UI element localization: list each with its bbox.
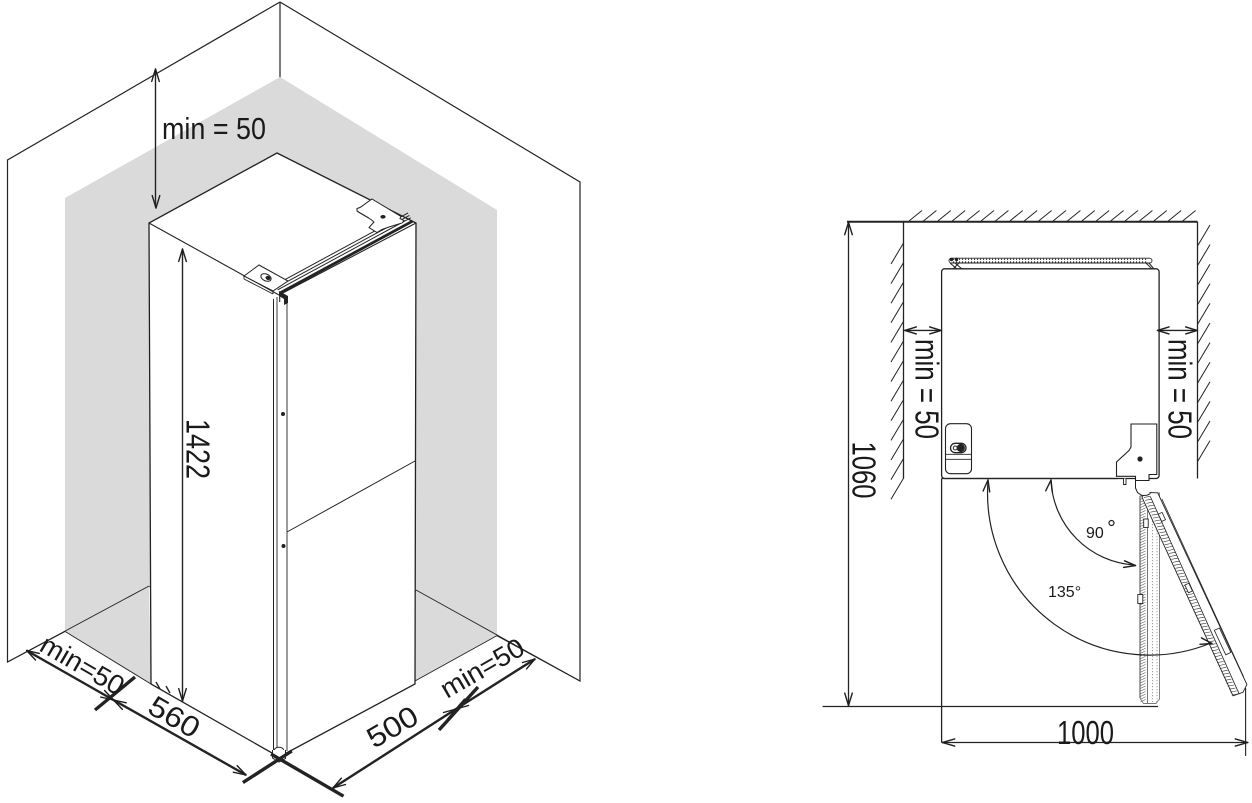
svg-text:90: 90 (1086, 525, 1104, 542)
svg-text:min = 50: min = 50 (162, 111, 266, 146)
svg-text:1000: 1000 (1057, 714, 1114, 751)
svg-text:500: 500 (362, 700, 425, 755)
svg-text:1422: 1422 (180, 419, 217, 479)
svg-text:min = 50: min = 50 (909, 339, 946, 439)
svg-text:min = 50: min = 50 (1162, 339, 1199, 439)
svg-text:1060: 1060 (846, 442, 883, 499)
svg-text:135°: 135° (1048, 584, 1081, 601)
